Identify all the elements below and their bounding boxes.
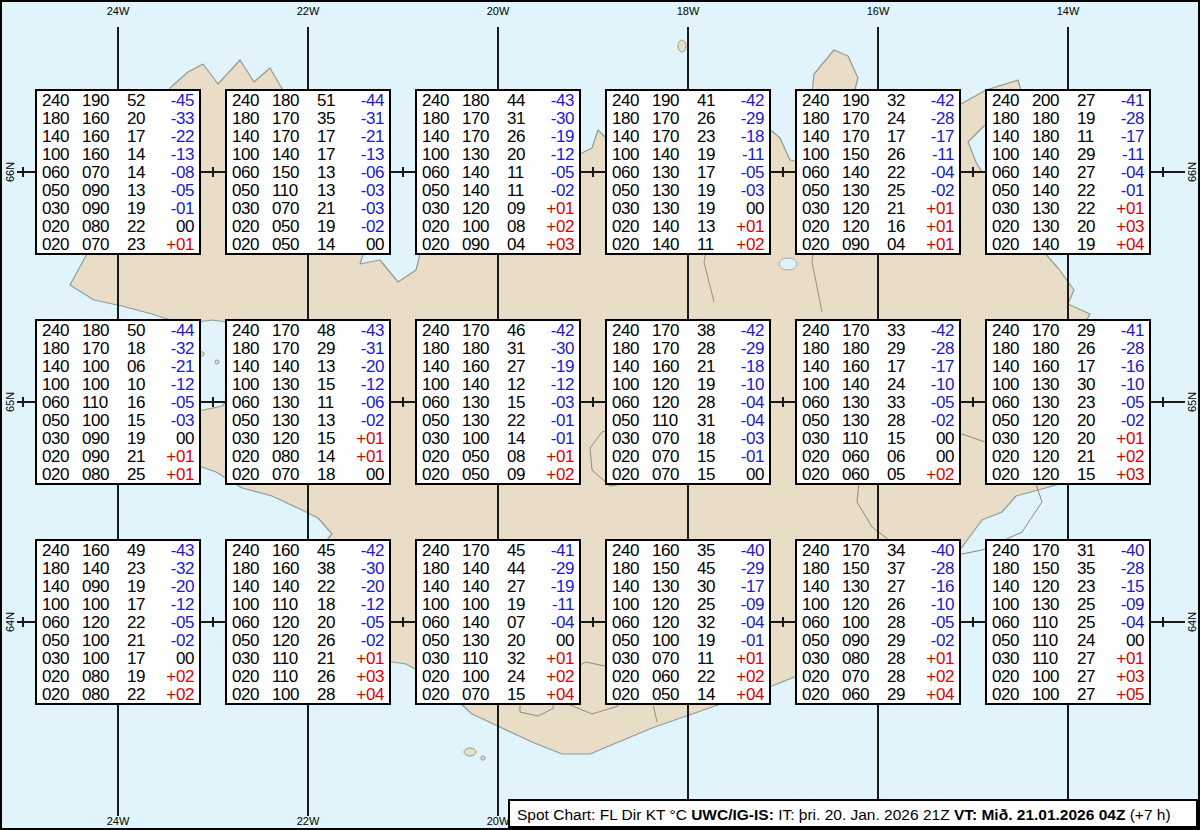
spot-table-row: 02010027+05 [992,686,1144,704]
kt-cell: 13 [127,182,158,200]
spot-table-row: 05013022-01 [422,412,574,430]
fl-cell: 020 [42,466,82,484]
dir-cell: 100 [462,218,507,236]
dir-cell: 070 [272,466,317,484]
fl-cell: 240 [232,542,272,560]
kt-cell: 22 [507,412,538,430]
dir-cell: 090 [82,200,127,218]
dir-cell: 140 [272,146,317,164]
temp-cell: -29 [538,560,574,578]
temp-cell: -17 [918,128,954,146]
fl-cell: 140 [612,358,652,376]
fl-cell: 240 [612,322,652,340]
fl-cell: 020 [612,236,652,254]
fl-cell: 140 [422,358,462,376]
temp-cell: +03 [1108,466,1144,484]
spot-table-row: 10015026-11 [802,146,954,164]
dir-cell: 180 [272,92,317,110]
spot-table-row: 10013015-12 [232,376,384,394]
fl-cell: 180 [42,110,82,128]
dir-cell: 170 [272,340,317,358]
dir-cell: 130 [462,632,507,650]
fl-cell: 240 [992,92,1032,110]
temp-cell: +01 [918,200,954,218]
fl-cell: 030 [42,430,82,448]
temp-cell: -28 [1108,340,1144,358]
temp-cell: -05 [158,394,194,412]
kt-cell: 27 [887,578,918,596]
kt-cell: 14 [317,448,348,466]
kt-cell: 29 [1077,322,1108,340]
spot-table-row: 0200600600 [802,448,954,466]
temp-cell: -02 [348,412,384,430]
spot-table-row: 05011013-03 [232,182,384,200]
kt-cell: 17 [317,128,348,146]
temp-cell: -29 [728,110,764,128]
dir-cell: 120 [842,200,887,218]
fl-cell: 140 [232,128,272,146]
dir-cell: 140 [652,218,697,236]
dir-cell: 100 [82,596,127,614]
dir-cell: 120 [1032,430,1077,448]
spot-table-row: 24017048-43 [232,322,384,340]
spot-table-row: 02005014+04 [612,686,764,704]
lon-label-top: 18W [677,5,700,17]
kt-cell: 28 [887,614,918,632]
dir-cell: 090 [462,236,507,254]
kt-cell: 22 [127,218,158,236]
fl-cell: 100 [422,596,462,614]
fl-cell: 060 [422,394,462,412]
spot-table-64N-22W: 24016045-4218016038-3014014022-201001101… [225,539,391,705]
lat-label: 65N [1187,392,1198,412]
spot-table-row: 14017017-21 [232,128,384,146]
kt-cell: 19 [697,146,728,164]
kt-cell: 19 [697,632,728,650]
kt-cell: 14 [127,164,158,182]
fl-cell: 020 [612,466,652,484]
lon-label-top: 16W [867,5,890,17]
temp-cell: +04 [1108,236,1144,254]
kt-cell: 04 [507,236,538,254]
spot-table-row: 05009029-02 [802,632,954,650]
spot-table-64N-18W: 24016035-4018015045-2914013030-171001202… [605,539,771,705]
temp-cell: -30 [538,110,574,128]
fl-cell: 240 [42,542,82,560]
fl-cell: 020 [42,668,82,686]
fl-cell: 180 [802,560,842,578]
spot-table-row: 03011021+01 [232,650,384,668]
spot-table-row: 02014013+01 [612,218,764,236]
temp-cell: -04 [1108,164,1144,182]
temp-cell: +02 [1108,448,1144,466]
temp-cell: -05 [158,614,194,632]
kt-cell: 19 [697,182,728,200]
spot-table-row: 18018031-30 [422,340,574,358]
spot-table-row: 10012025-09 [612,596,764,614]
spot-table-row: 02007015+04 [422,686,574,704]
temp-cell: -28 [1108,110,1144,128]
kt-cell: 33 [887,394,918,412]
kt-cell: 22 [887,164,918,182]
kt-cell: 22 [1077,182,1108,200]
spot-table-row: 18015045-29 [612,560,764,578]
kt-cell: 44 [507,92,538,110]
spot-table-row: 02006005+02 [802,466,954,484]
fl-cell: 030 [802,650,842,668]
kt-cell: 19 [127,668,158,686]
kt-cell: 17 [127,650,158,668]
dir-cell: 060 [842,466,887,484]
temp-cell: -05 [918,614,954,632]
dir-cell: 070 [82,164,127,182]
kt-cell: 18 [317,596,348,614]
temp-cell: -03 [348,200,384,218]
kt-cell: 29 [887,340,918,358]
spot-table-row: 02007015-01 [612,448,764,466]
fl-cell: 050 [992,632,1032,650]
spot-table-row: 02008025+01 [42,466,194,484]
spot-table-66N-16W: 24019032-4218017024-2814017017-171001502… [795,89,961,255]
kt-cell: 14 [507,430,538,448]
dir-cell: 170 [82,340,127,358]
dir-cell: 100 [462,596,507,614]
temp-cell: 00 [158,218,194,236]
kt-cell: 13 [317,182,348,200]
spot-table-row: 05014011-02 [422,182,574,200]
dir-cell: 130 [1032,218,1077,236]
dir-cell: 170 [462,542,507,560]
kt-cell: 21 [317,200,348,218]
kt-cell: 31 [697,412,728,430]
kt-cell: 19 [127,578,158,596]
dir-cell: 170 [652,128,697,146]
fl-cell: 240 [422,542,462,560]
fl-cell: 140 [612,128,652,146]
temp-cell: -42 [538,322,574,340]
dir-cell: 080 [82,218,127,236]
fl-cell: 020 [42,448,82,466]
fl-cell: 180 [612,110,652,128]
fl-cell: 240 [422,92,462,110]
dir-cell: 120 [842,596,887,614]
kt-cell: 25 [127,466,158,484]
temp-cell: 00 [1108,632,1144,650]
temp-cell: -02 [918,632,954,650]
lon-label-bottom: 22W [297,815,320,827]
dir-cell: 190 [82,92,127,110]
kt-cell: 30 [1077,376,1108,394]
kt-cell: 34 [887,542,918,560]
fl-cell: 030 [612,200,652,218]
temp-cell: -12 [538,376,574,394]
temp-cell: -31 [348,340,384,358]
temp-cell: +02 [538,466,574,484]
dir-cell: 100 [842,614,887,632]
spot-table-row: 14010006-21 [42,358,194,376]
spot-table-66N-18W: 24019041-4218017026-2914017023-181001401… [605,89,771,255]
spot-table-row: 24017046-42 [422,322,574,340]
spot-table-row: 02006029+04 [802,686,954,704]
spot-table-row: 02010027+03 [992,668,1144,686]
dir-cell: 170 [272,128,317,146]
dir-cell: 130 [1032,596,1077,614]
fl-cell: 030 [422,430,462,448]
dir-cell: 130 [652,200,697,218]
dir-cell: 060 [842,448,887,466]
dir-cell: 100 [1032,668,1077,686]
spot-table-row: 14013030-17 [612,578,764,596]
spot-table-row: 0301301900 [612,200,764,218]
fl-cell: 100 [422,146,462,164]
kt-cell: 13 [697,218,728,236]
spot-table-row: 18018029-28 [802,340,954,358]
kt-cell: 19 [127,200,158,218]
spot-table-row: 05013025-02 [802,182,954,200]
spot-table-row: 18016020-33 [42,110,194,128]
fl-cell: 100 [232,146,272,164]
dir-cell: 140 [842,164,887,182]
kt-cell: 20 [1077,412,1108,430]
dir-cell: 100 [82,632,127,650]
dir-cell: 140 [272,578,317,596]
kt-cell: 22 [127,686,158,704]
fl-cell: 240 [42,92,82,110]
fl-cell: 030 [992,430,1032,448]
dir-cell: 170 [842,128,887,146]
temp-cell: +03 [538,236,574,254]
fl-cell: 140 [422,128,462,146]
fl-cell: 100 [992,146,1032,164]
dir-cell: 140 [462,614,507,632]
fl-cell: 020 [802,686,842,704]
spot-table-row: 14016021-18 [612,358,764,376]
kt-cell: 27 [507,578,538,596]
spot-table-row: 06013015-03 [422,394,574,412]
dir-cell: 130 [652,164,697,182]
dir-cell: 110 [272,668,317,686]
temp-cell: -02 [918,412,954,430]
fl-cell: 140 [992,128,1032,146]
kt-cell: 07 [507,614,538,632]
spot-table-row: 24017031-40 [992,542,1144,560]
spot-table-row: 02007023+01 [42,236,194,254]
kt-cell: 28 [887,668,918,686]
kt-cell: 13 [317,358,348,376]
temp-cell: -03 [728,430,764,448]
spot-table-row: 02008019+02 [42,668,194,686]
temp-cell: +01 [918,650,954,668]
fl-cell: 140 [802,128,842,146]
spot-table-row: 06010028-05 [802,614,954,632]
fl-cell: 020 [422,218,462,236]
spot-table-65N-18W: 24017038-4218017028-2914016021-181001201… [605,319,771,485]
spot-table-row: 06013023-05 [992,394,1144,412]
fl-cell: 060 [802,614,842,632]
spot-table-row: 24018051-44 [232,92,384,110]
fl-cell: 020 [232,218,272,236]
temp-cell: -42 [348,542,384,560]
spot-table-65N-20W: 24017046-4218018031-3014016027-191001401… [415,319,581,485]
fl-cell: 020 [42,686,82,704]
spot-table-row: 18015035-28 [992,560,1144,578]
spot-table-row: 06013017-05 [612,164,764,182]
fl-cell: 020 [992,466,1032,484]
temp-cell: -40 [1108,542,1144,560]
kt-cell: 45 [697,560,728,578]
temp-cell: 00 [348,236,384,254]
dir-cell: 160 [82,110,127,128]
spot-table-row: 06013033-05 [802,394,954,412]
dir-cell: 170 [272,322,317,340]
dir-cell: 100 [1032,686,1077,704]
temp-cell: -11 [1108,146,1144,164]
spot-table-row: 24017033-42 [802,322,954,340]
temp-cell: -10 [728,376,764,394]
dir-cell: 130 [462,412,507,430]
fl-cell: 020 [612,218,652,236]
dir-cell: 090 [842,632,887,650]
fl-cell: 030 [992,650,1032,668]
spot-table-row: 24016049-43 [42,542,194,560]
kt-cell: 10 [127,376,158,394]
spot-table-row: 03011027+01 [992,650,1144,668]
kt-cell: 35 [317,110,348,128]
temp-cell: -02 [538,182,574,200]
fl-cell: 180 [232,110,272,128]
fl-cell: 180 [992,340,1032,358]
spot-table-row: 14016017-16 [992,358,1144,376]
spot-table-row: 02007028+02 [802,668,954,686]
fl-cell: 240 [992,322,1032,340]
temp-cell: -28 [918,340,954,358]
spot-table-row: 02011026+03 [232,668,384,686]
dir-cell: 130 [272,394,317,412]
temp-cell: -03 [348,182,384,200]
dir-cell: 100 [82,358,127,376]
temp-cell: -03 [158,412,194,430]
fl-cell: 180 [232,560,272,578]
dir-cell: 120 [842,218,887,236]
fl-cell: 020 [612,668,652,686]
kt-cell: 19 [1077,236,1108,254]
kt-cell: 52 [127,92,158,110]
fl-cell: 180 [802,110,842,128]
fl-cell: 100 [612,376,652,394]
spot-table-row: 10013030-10 [992,376,1144,394]
dir-cell: 140 [842,376,887,394]
fl-cell: 020 [422,236,462,254]
spot-table-64N-16W: 24017034-4018015037-2814013027-161001202… [795,539,961,705]
temp-cell: 00 [728,200,764,218]
temp-cell: -41 [538,542,574,560]
spot-table-65N-14W: 24017029-4118018026-2814016017-161001303… [985,319,1151,485]
temp-cell: +02 [538,218,574,236]
fl-cell: 020 [802,218,842,236]
spot-table-row: 14009019-20 [42,578,194,596]
temp-cell: -22 [158,128,194,146]
dir-cell: 120 [462,200,507,218]
spot-table-row: 05013028-02 [802,412,954,430]
dir-cell: 170 [462,128,507,146]
temp-cell: +01 [348,430,384,448]
lon-label-bottom: 24W [107,815,130,827]
dir-cell: 070 [652,448,697,466]
kt-cell: 20 [1077,430,1108,448]
temp-cell: +03 [1108,218,1144,236]
spot-table-row: 18017024-28 [802,110,954,128]
fl-cell: 240 [42,322,82,340]
kt-cell: 21 [127,448,158,466]
kt-cell: 23 [1077,394,1108,412]
fl-cell: 060 [422,164,462,182]
lat-label: 65N [5,392,16,412]
fl-cell: 020 [992,236,1032,254]
temp-cell: +01 [158,448,194,466]
fl-cell: 020 [42,236,82,254]
fl-cell: 240 [992,542,1032,560]
kt-cell: 35 [1077,560,1108,578]
dir-cell: 130 [842,412,887,430]
temp-cell: -06 [348,394,384,412]
dir-cell: 120 [1032,412,1077,430]
dir-cell: 130 [652,182,697,200]
spot-table-row: 14016017-22 [42,128,194,146]
kt-cell: 28 [697,340,728,358]
kt-cell: 19 [697,200,728,218]
lon-label-top: 22W [297,5,320,17]
dir-cell: 050 [272,218,317,236]
temp-cell: -19 [538,358,574,376]
temp-cell: +01 [158,466,194,484]
temp-cell: +03 [1108,668,1144,686]
dir-cell: 160 [82,146,127,164]
spot-table-row: 02005019-02 [232,218,384,236]
dir-cell: 180 [462,340,507,358]
dir-cell: 160 [1032,358,1077,376]
temp-cell: -02 [918,182,954,200]
spot-table-row: 24018044-43 [422,92,574,110]
kt-cell: 20 [317,614,348,632]
spot-table-64N-14W: 24017031-4018015035-2814012023-151001302… [985,539,1151,705]
fl-cell: 050 [232,412,272,430]
spot-table-row: 24016045-42 [232,542,384,560]
spot-table-row: 10014017-13 [232,146,384,164]
kt-cell: 37 [887,560,918,578]
dir-cell: 200 [1032,92,1077,110]
footer-segment: VT: Mið. 21.01.2026 04Z [954,806,1125,823]
fl-cell: 240 [802,322,842,340]
kt-cell: 09 [507,200,538,218]
fl-cell: 140 [232,578,272,596]
kt-cell: 08 [507,218,538,236]
kt-cell: 18 [697,430,728,448]
spot-table-row: 03007018-03 [612,430,764,448]
dir-cell: 140 [462,560,507,578]
kt-cell: 21 [887,200,918,218]
fl-cell: 030 [232,200,272,218]
spot-table-row: 14012023-15 [992,578,1144,596]
spot-table-row: 0501102400 [992,632,1144,650]
fl-cell: 060 [612,394,652,412]
temp-cell: +01 [918,218,954,236]
fl-cell: 180 [612,560,652,578]
spot-table-row: 06012022-05 [42,614,194,632]
kt-cell: 50 [127,322,158,340]
temp-cell: -21 [158,358,194,376]
kt-cell: 23 [127,560,158,578]
fl-cell: 180 [422,560,462,578]
